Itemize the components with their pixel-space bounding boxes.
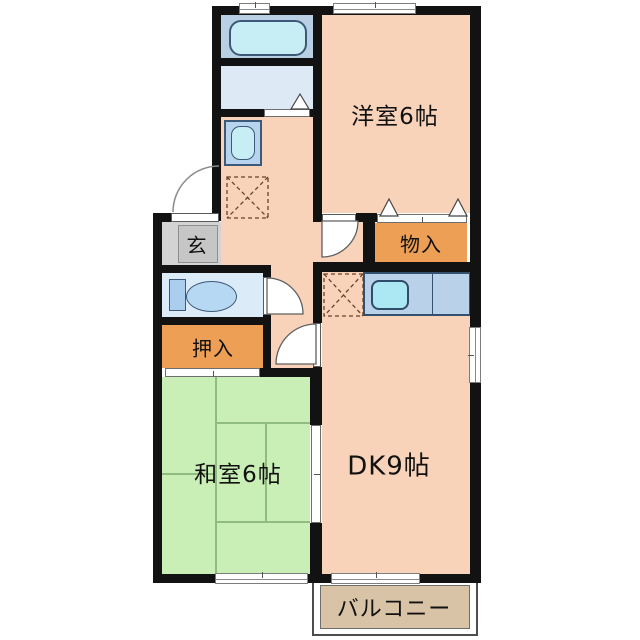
window-japanese-room <box>215 573 308 584</box>
toilet-door-leaf <box>263 277 271 315</box>
window-western-room <box>333 3 416 14</box>
washing-machine-pan <box>224 120 262 166</box>
window-dk-balcony <box>331 573 420 584</box>
door-tick <box>422 217 423 223</box>
dk-label: DK9帖 <box>347 446 431 483</box>
window-tick <box>255 2 256 8</box>
wall-utility-western <box>313 6 322 222</box>
window-tick <box>376 572 377 578</box>
toilet-bowl-icon <box>186 281 237 312</box>
wall-storage-bottom <box>313 262 471 272</box>
kitchen-sink-icon <box>371 280 409 310</box>
wall-japanese-top <box>258 368 322 377</box>
window-sash <box>475 328 476 382</box>
japanese-dk-sliding-door <box>311 425 321 523</box>
western-room-door-leaf <box>322 214 356 223</box>
hallway-lower-floor <box>271 265 313 377</box>
wall-toilet-right-upper <box>263 265 271 277</box>
window-dk-right <box>469 327 481 383</box>
japanese-room-label: 和室6帖 <box>194 455 282 489</box>
wall-hall-dk-upper <box>313 265 322 323</box>
window-tick <box>375 2 376 8</box>
entrance-label: 玄 <box>187 230 208 259</box>
wall-western-bottom-corner <box>313 213 322 222</box>
wall-right <box>470 6 481 583</box>
storage-label: 物入 <box>400 229 442 258</box>
window-sash <box>334 9 415 10</box>
washing-machine-icon <box>231 126 255 160</box>
dk-door-leaf <box>313 323 321 367</box>
balcony-label: バルコニー <box>337 591 452 623</box>
wall-left-upper <box>212 6 221 221</box>
wall-japanese-dk-upper <box>310 377 322 425</box>
window-tick <box>262 572 263 578</box>
storage-door <box>377 214 467 223</box>
wall-entrance-toilet <box>153 265 271 273</box>
wall-toilet-right-lower <box>263 315 271 325</box>
window-sash <box>216 579 307 580</box>
wall-japanese-dk-lower <box>310 523 322 574</box>
wall-entrance-stub <box>153 213 171 222</box>
bathtub-icon <box>229 20 307 56</box>
door-tick <box>213 371 214 377</box>
opening-washroom <box>264 109 310 117</box>
western-room-label: 洋室6帖 <box>351 97 439 131</box>
window-bath <box>239 3 270 14</box>
window-sash <box>332 579 419 580</box>
door-tick <box>314 474 320 475</box>
wall-bottom <box>153 574 481 583</box>
washroom-floor <box>221 66 313 109</box>
closet-sliding-door <box>165 368 260 377</box>
counter-divider <box>432 274 433 314</box>
window-sash <box>240 9 269 10</box>
corridor-floor <box>313 222 363 262</box>
tatami-line <box>215 422 310 424</box>
wall-toilet-closet <box>153 317 271 325</box>
entrance-door-leaf <box>171 213 219 222</box>
tatami-line <box>215 521 310 523</box>
closet-label: 押入 <box>192 333 234 362</box>
toilet-icon <box>169 279 186 311</box>
floor-plan: 洋室6帖 物入 玄 押入 和室6帖 DK9帖 バルコニー <box>0 0 640 640</box>
window-tick <box>468 355 474 356</box>
wall-bath-washroom <box>221 58 313 66</box>
